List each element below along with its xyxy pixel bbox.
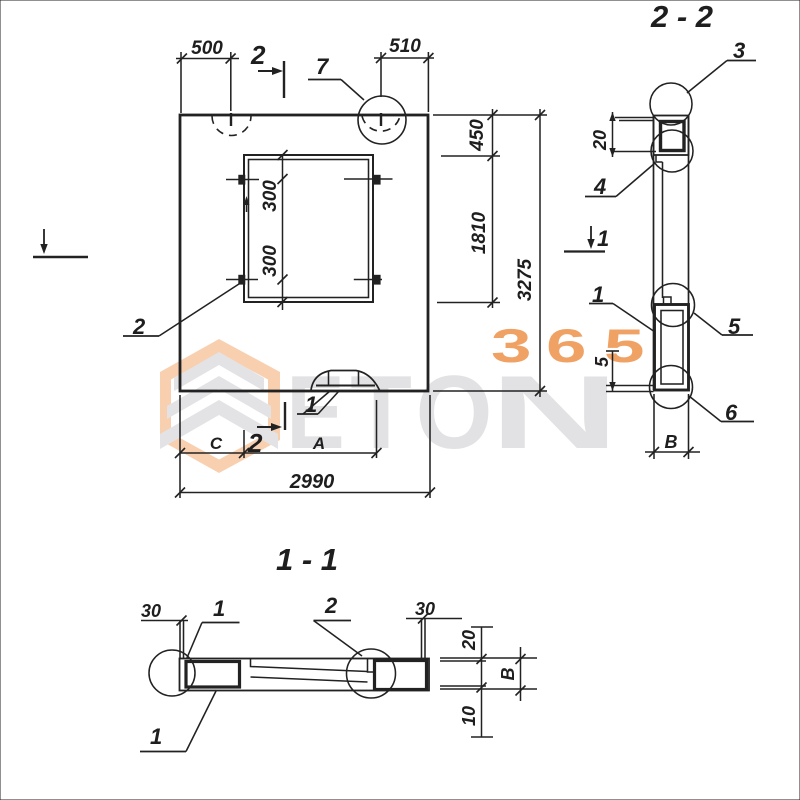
svg-text:20: 20 (459, 630, 479, 651)
svg-text:300: 300 (260, 180, 281, 212)
svg-text:1 - 1: 1 - 1 (276, 542, 338, 577)
svg-text:2 - 2: 2 - 2 (650, 0, 713, 34)
svg-text:A: A (312, 434, 325, 453)
svg-text:5: 5 (592, 356, 612, 367)
svg-text:3: 3 (733, 38, 745, 63)
svg-text:3275: 3275 (515, 258, 536, 301)
svg-text:10: 10 (459, 706, 479, 726)
svg-text:N: N (490, 355, 619, 471)
svg-text:2: 2 (250, 40, 266, 70)
svg-text:4: 4 (593, 174, 606, 199)
svg-text:300: 300 (260, 245, 281, 277)
svg-text:500: 500 (191, 38, 223, 59)
svg-text:1: 1 (213, 596, 225, 621)
svg-text:510: 510 (389, 36, 421, 57)
svg-text:7: 7 (316, 54, 330, 79)
svg-text:30: 30 (141, 601, 161, 621)
svg-text:1: 1 (150, 724, 162, 749)
svg-text:2: 2 (324, 593, 338, 618)
svg-text:20: 20 (590, 130, 610, 151)
svg-text:3: 3 (491, 320, 532, 372)
svg-text:1: 1 (597, 226, 609, 251)
svg-text:C: C (210, 434, 223, 453)
svg-text:B: B (498, 668, 518, 681)
svg-text:2990: 2990 (289, 471, 335, 493)
svg-text:6: 6 (546, 320, 587, 372)
svg-text:1810: 1810 (469, 211, 490, 254)
svg-text:450: 450 (467, 119, 488, 152)
svg-text:B: B (665, 432, 678, 452)
